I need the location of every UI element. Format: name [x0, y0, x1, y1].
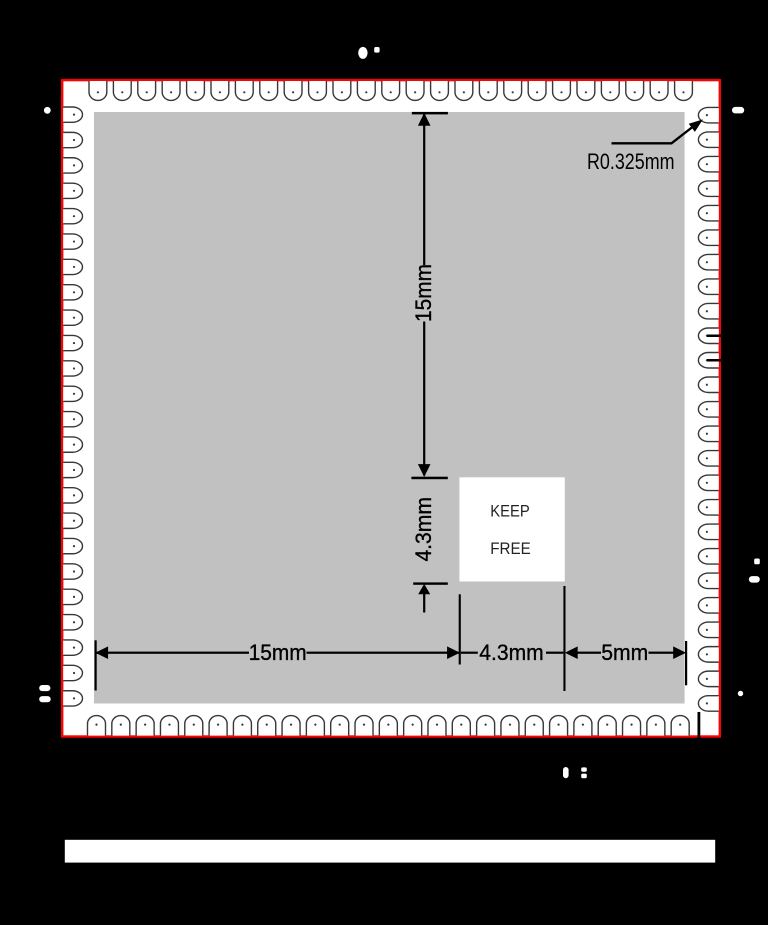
svg-text:15mm: 15mm — [411, 264, 436, 322]
svg-text:5mm: 5mm — [601, 640, 648, 665]
svg-text:4.3mm: 4.3mm — [479, 640, 544, 665]
svg-text:15mm: 15mm — [249, 640, 307, 665]
svg-text:FREE: FREE — [490, 539, 531, 558]
svg-text:4.3mm: 4.3mm — [411, 497, 436, 562]
svg-text:KEEP: KEEP — [490, 501, 530, 520]
svg-text:R0.325mm: R0.325mm — [587, 149, 675, 174]
